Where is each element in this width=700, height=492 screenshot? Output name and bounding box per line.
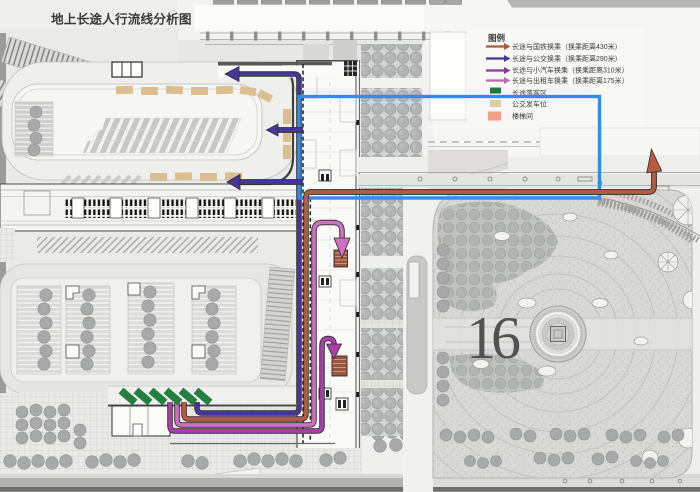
svg-text:长途与小汽车换乘（换乘距离310米）: 长途与小汽车换乘（换乘距离310米） bbox=[512, 66, 629, 75]
svg-text:图例: 图例 bbox=[488, 33, 506, 43]
svg-text:长途与出租车换乘（换乘距离175米）: 长途与出租车换乘（换乘距离175米） bbox=[512, 76, 629, 85]
svg-text:长途与国铁换乘（换乘距离430米）: 长途与国铁换乘（换乘距离430米） bbox=[512, 42, 622, 51]
svg-text:长途与公交换乘（换乘距离290米）: 长途与公交换乘（换乘距离290米） bbox=[512, 54, 622, 63]
svg-text:地上长途人行流线分析图: 地上长途人行流线分析图 bbox=[51, 12, 192, 27]
svg-text:楼梯间: 楼梯间 bbox=[512, 112, 533, 121]
svg-text:公交发车位: 公交发车位 bbox=[512, 100, 547, 109]
svg-text:16: 16 bbox=[466, 305, 520, 371]
